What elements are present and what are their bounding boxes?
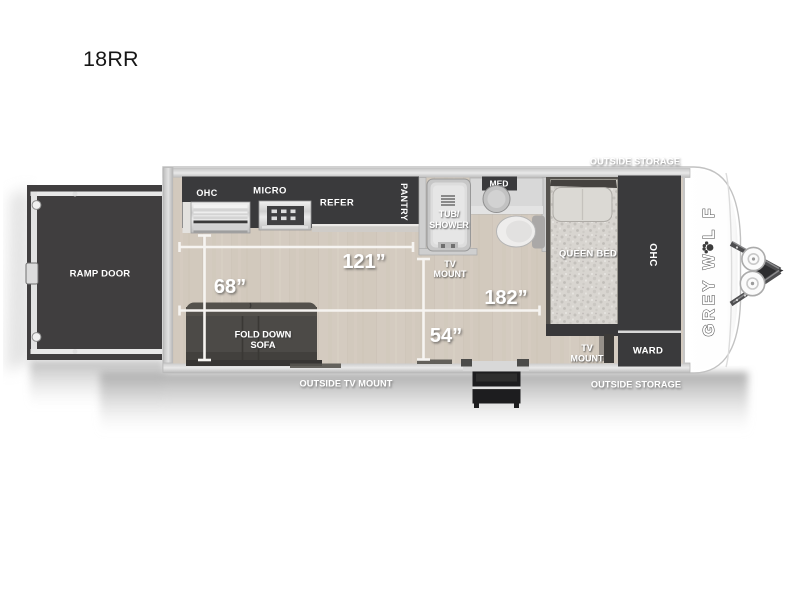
svg-text:TV: TV: [444, 259, 456, 269]
svg-text:GREY W: GREY W: [701, 254, 718, 337]
svg-text:MOUNT: MOUNT: [571, 354, 604, 364]
svg-text:OHC: OHC: [196, 188, 217, 198]
svg-text:68”: 68”: [214, 276, 246, 298]
svg-text:TUB/: TUB/: [439, 209, 460, 219]
svg-text:18RR: 18RR: [83, 47, 139, 71]
svg-text:182”: 182”: [484, 287, 527, 309]
svg-text:SHOWER: SHOWER: [429, 220, 469, 230]
svg-text:OUTSIDE STORAGE: OUTSIDE STORAGE: [591, 380, 681, 390]
svg-text:OUTSIDE TV MOUNT: OUTSIDE TV MOUNT: [300, 379, 393, 389]
svg-text:SOFA: SOFA: [250, 340, 275, 350]
svg-text:OUTSIDE STORAGE: OUTSIDE STORAGE: [590, 157, 680, 167]
svg-text:OHC: OHC: [647, 243, 658, 266]
svg-text:TV: TV: [581, 343, 593, 353]
svg-text:REFER: REFER: [320, 198, 354, 209]
svg-text:MICRO: MICRO: [253, 186, 287, 197]
svg-text:54”: 54”: [430, 325, 462, 347]
svg-text:PANTRY: PANTRY: [399, 183, 409, 221]
svg-text:MOUNT: MOUNT: [434, 269, 467, 279]
svg-text:RAMP DOOR: RAMP DOOR: [70, 269, 131, 280]
svg-text:121”: 121”: [342, 251, 385, 273]
svg-text:QUEEN BED: QUEEN BED: [559, 249, 617, 259]
svg-text:WARD: WARD: [633, 346, 663, 357]
svg-text:FOLD DOWN: FOLD DOWN: [235, 330, 292, 340]
